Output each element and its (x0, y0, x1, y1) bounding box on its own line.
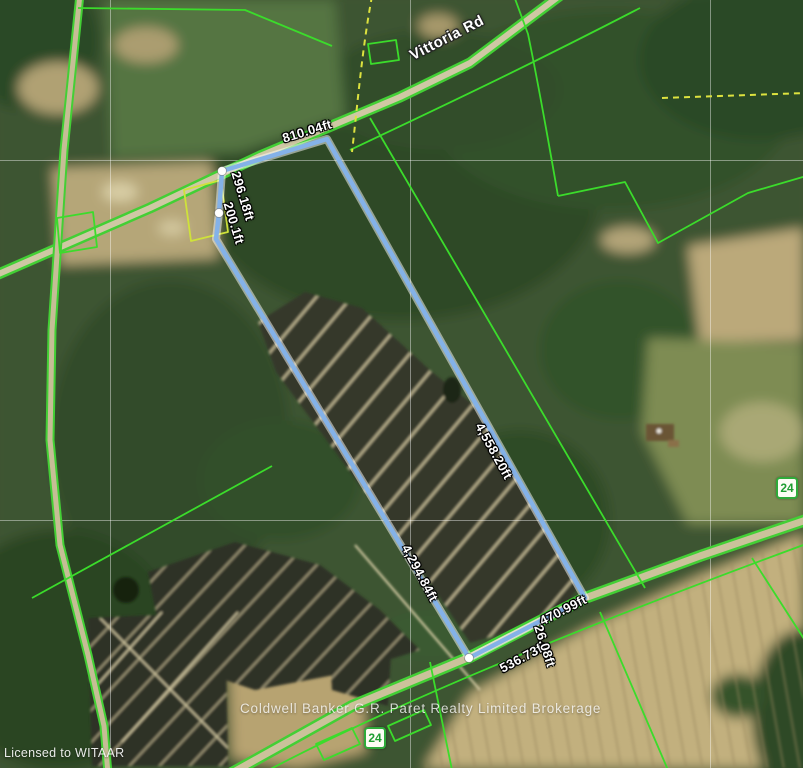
brokerage-watermark: Coldwell Banker G.R. Paret Realty Limite… (240, 701, 601, 716)
aerial-map: Vittoria Rd 810.04ft 296.18ft 200.1ft 4,… (0, 0, 803, 768)
highway-24-badge-bottom: 24 (364, 727, 386, 749)
map-canvas (0, 0, 803, 768)
license-text: Licensed to WITAAR (4, 746, 125, 760)
highway-24-badge-right: 24 (776, 477, 798, 499)
